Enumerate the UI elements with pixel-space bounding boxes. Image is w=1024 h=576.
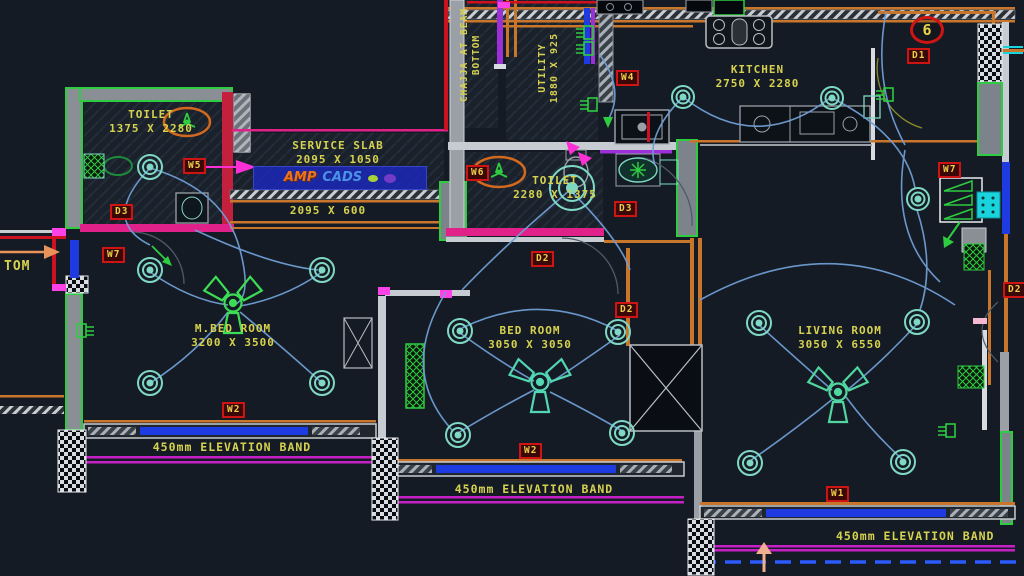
elevation-band-note[interactable]: 450mm ELEVATION BAND	[384, 482, 684, 496]
tag-d2-c[interactable]: D2	[1003, 282, 1024, 298]
room-dims: 1375 X 2280	[95, 122, 207, 136]
room-label-m-bed-room[interactable]: M.BED ROOM 3200 X 3500	[168, 322, 298, 350]
room-dims: 2095 X 1050	[262, 153, 414, 167]
ceiling-light-icon	[446, 423, 470, 447]
tag-d2-b[interactable]: D2	[615, 302, 638, 318]
ceiling-light-icon	[907, 188, 929, 210]
room-name: BED ROOM	[465, 324, 595, 338]
watermark-dot-icon	[384, 174, 396, 183]
ceiling-light-icon	[672, 86, 694, 108]
cad-canvas[interactable]: TOILET 1375 X 2280 SERVICE SLAB 2095 X 1…	[0, 0, 1024, 576]
service-band-dims[interactable]: 2095 X 600	[253, 204, 403, 218]
tag-door-number-6[interactable]: 6	[910, 16, 944, 44]
room-name: UTILITY	[537, 13, 549, 123]
room-label-bed-room[interactable]: BED ROOM 3050 X 3050	[465, 324, 595, 352]
tag-d1[interactable]: D1	[907, 48, 930, 64]
tag-w6[interactable]: W6	[466, 165, 489, 181]
tag-w2-a[interactable]: W2	[222, 402, 245, 418]
ceiling-light-icon	[310, 371, 334, 395]
tag-w1[interactable]: W1	[826, 486, 849, 502]
room-dims: 2280 X 1375	[497, 188, 613, 202]
watermark-text-1: AMP	[284, 170, 317, 186]
tag-d3-a[interactable]: D3	[110, 204, 133, 220]
ceiling-light-icon	[138, 371, 162, 395]
room-label-toilet-2[interactable]: TOILET 2280 X 1375	[497, 174, 613, 202]
socket-box-icon	[958, 366, 984, 388]
sink-icon	[615, 110, 669, 144]
room-label-living-room[interactable]: LIVING ROOM 3050 X 6550	[770, 324, 910, 352]
watermark-dot-icon	[368, 175, 378, 182]
tag-w5[interactable]: W5	[183, 158, 206, 174]
room-name: SERVICE SLAB	[262, 139, 414, 153]
room-label-service-slab[interactable]: SERVICE SLAB 2095 X 1050	[262, 139, 414, 167]
room-dims: 3050 X 6550	[770, 338, 910, 352]
tag-w4[interactable]: W4	[616, 70, 639, 86]
tag-w7-right[interactable]: W7	[938, 162, 961, 178]
left-edge-partial-text: TOM	[4, 260, 48, 274]
room-name: KITCHEN	[695, 63, 820, 77]
ceiling-light-icon	[610, 421, 634, 445]
room-label-toilet-1[interactable]: TOILET 1375 X 2280	[95, 108, 207, 136]
wc-icon	[176, 193, 208, 223]
room-dims: 2750 X 2280	[695, 77, 820, 91]
louvered-window-icon	[940, 178, 1000, 270]
elevation-band-note[interactable]: 450mm ELEVATION BAND	[836, 529, 1024, 543]
room-name: M.BED ROOM	[168, 322, 298, 336]
room-dims: 3050 X 3050	[465, 338, 595, 352]
ceiling-light-icon	[747, 311, 771, 335]
ceiling-light-icon	[738, 451, 762, 475]
switch-socket-icon	[938, 424, 955, 437]
ceiling-light-icon	[138, 258, 162, 282]
room-label-utility[interactable]: UTILITY 1880 X 925	[537, 13, 561, 123]
watermark-logo: AMP CADS	[253, 166, 427, 190]
gas-stove-icon	[706, 16, 772, 48]
tag-d2-a[interactable]: D2	[531, 251, 554, 267]
switch-socket-icon	[876, 88, 893, 101]
tag-w2-b[interactable]: W2	[519, 443, 542, 459]
room-label-kitchen[interactable]: KITCHEN 2750 X 2280	[695, 63, 820, 91]
chajja-note[interactable]: CHAJJA AT BEAM BOTTOM	[459, 0, 483, 115]
room-dims: 3200 X 3500	[168, 336, 298, 350]
room-name: LIVING ROOM	[770, 324, 910, 338]
duct-icon	[84, 154, 104, 178]
tag-w7-left[interactable]: W7	[102, 247, 125, 263]
ceiling-fan-icon	[510, 359, 571, 412]
watermark-text-2: CADS	[322, 170, 362, 186]
room-dims: 1880 X 925	[549, 13, 561, 123]
ceiling-light-icon	[891, 450, 915, 474]
room-name: TOILET	[95, 108, 207, 122]
tag-d3-b[interactable]: D3	[614, 201, 637, 217]
elevation-band-note[interactable]: 450mm ELEVATION BAND	[86, 440, 378, 454]
kitchen-counter-icon	[740, 106, 870, 142]
room-name: TOILET	[497, 174, 613, 188]
